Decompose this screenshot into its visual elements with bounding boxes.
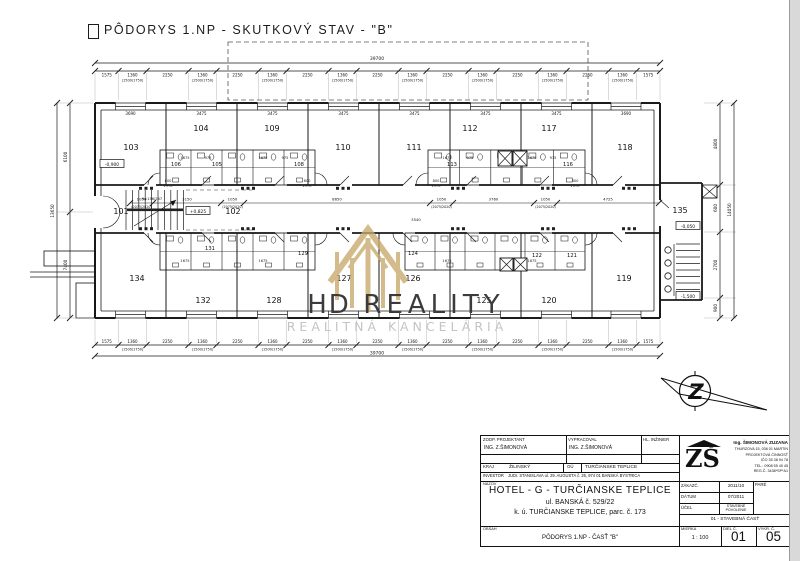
dim-label: (1500/1750)	[402, 348, 424, 352]
micro-dim: 1675	[180, 259, 189, 263]
micro-dim: 1675	[442, 259, 451, 263]
micro-dim: 800	[304, 179, 312, 183]
vent-square	[462, 187, 465, 190]
watermark-reality: REALITY	[363, 290, 504, 320]
fixture	[229, 153, 236, 158]
tb-kraj-label: KRAJ	[483, 465, 494, 470]
watermark-layer: HDREALITYREALITNÁ KANCELÁRIA	[287, 229, 508, 334]
room-width-label: 3475	[196, 111, 207, 116]
tb-nazov2: ul. BANSKÁ č. 529/22	[481, 499, 679, 506]
fixture	[173, 263, 179, 267]
dim-label: (2075/2020)	[431, 205, 451, 209]
room-width-label: 3475	[409, 111, 420, 116]
dim-label: 2250	[442, 339, 453, 344]
door-gap	[340, 183, 352, 186]
level-label: -0,050	[681, 224, 695, 230]
tb-obsah-value: PÔDORYS 1.NP - ČASŤ "B"	[481, 535, 679, 541]
door-gap	[613, 231, 625, 234]
micro-dim: 1675	[258, 156, 267, 160]
tb-zodp-label: ZODP. PROJEKTANT	[483, 438, 525, 443]
fixture	[537, 263, 543, 267]
dim-label: 2250	[302, 73, 313, 78]
dim-label: 1360	[267, 339, 278, 344]
dim-label: (1500/1750)	[542, 348, 564, 352]
tb-line	[753, 481, 754, 514]
vent-square	[342, 187, 345, 190]
dim-label: 1360	[337, 339, 348, 344]
dim-label: (1500/1750)	[332, 79, 354, 83]
core-room-label: 122	[532, 253, 542, 259]
dim-label: 1360	[477, 73, 488, 78]
vent-square	[336, 187, 339, 190]
door-arc	[416, 173, 428, 185]
dim-label: 1360	[337, 73, 348, 78]
dim-label: 8650	[332, 197, 342, 202]
fixture	[541, 154, 546, 160]
core-room-label: 131	[205, 246, 215, 252]
tb-line	[563, 463, 564, 472]
dim-label: 2250	[512, 339, 523, 344]
vent-square	[541, 227, 544, 230]
room-label: 101	[113, 207, 128, 216]
dim-label: (1500/1750)	[192, 348, 214, 352]
fixture	[198, 153, 205, 158]
micro-dim: 975	[205, 156, 212, 160]
dim-label: 2250	[372, 73, 383, 78]
dim-label: 1360	[617, 339, 628, 344]
fixture	[271, 237, 276, 243]
micro-dim: 1970	[302, 184, 312, 188]
title-block: ZODP. PROJEKTANT VYPRACOVAL HL. INŽINIER…	[480, 435, 792, 547]
micro-dim: 1675	[527, 259, 536, 263]
room-label: 104	[193, 124, 208, 133]
core-room-label: 124	[408, 251, 419, 257]
dim-label: (1500/1750)	[262, 348, 284, 352]
fixture	[297, 263, 303, 267]
fixture	[266, 178, 272, 182]
stamp-zs-monogram: ZŠ	[685, 446, 720, 471]
dim-label: (1500/1750)	[122, 348, 144, 352]
dim-label: 1360	[617, 73, 628, 78]
room-label: 134	[129, 274, 144, 283]
tb-ucel-value2: POVOLENIE	[719, 509, 753, 513]
tb-kraj-value: ŽILINSKÝ	[509, 465, 530, 470]
micro-dim: 800	[165, 179, 173, 183]
tb-line	[481, 526, 791, 527]
micro-dim: 1970	[570, 184, 580, 188]
north-letter: Z	[687, 380, 704, 404]
viewer-edge-strip	[789, 0, 800, 561]
dim-label: (1500/1750)	[612, 79, 634, 83]
dim-label: 1575	[643, 73, 654, 78]
dim-label: 1360	[197, 339, 208, 344]
room-label: 102	[225, 207, 240, 216]
room-label: 119	[616, 274, 631, 283]
vent-square	[633, 227, 636, 230]
micro-dim: 975	[550, 156, 557, 160]
dim-label: 1050	[228, 197, 238, 202]
room-width-label: 3690	[125, 111, 136, 116]
plan-line	[134, 200, 176, 226]
fixture	[302, 237, 307, 243]
tb-vykr-value: 05	[756, 530, 791, 544]
micro-dim: 975	[467, 156, 474, 160]
watermark-subtitle: REALITNÁ KANCELÁRIA	[287, 319, 508, 334]
dim-label: 3760	[489, 197, 499, 202]
fixture	[204, 263, 210, 267]
level-label: +0,825	[190, 209, 206, 215]
vent-square	[336, 227, 339, 230]
stamp-name: Ing. ŠIMONOVÁ ZUZANA	[725, 441, 788, 446]
tb-zakazc-value: 2011/10	[719, 484, 753, 489]
tb-line	[481, 454, 679, 455]
micro-dim: 1970	[163, 184, 173, 188]
stamp-line3: IČO 35 38 94 78	[725, 459, 788, 463]
fixture	[266, 263, 272, 267]
room-label: 111	[406, 143, 421, 152]
dim-label: 2250	[302, 339, 313, 344]
stamp-line2: PROJEKTOVÁ ČINNOSŤ	[725, 454, 788, 458]
tb-mierka-label: MIERKA	[681, 527, 696, 531]
vent-square	[150, 187, 153, 190]
vent-square	[342, 227, 345, 230]
dim-label: (1500/1750)	[542, 79, 564, 83]
vent-square	[139, 187, 142, 190]
door-gap	[144, 183, 156, 186]
micro-dim: 1970	[431, 184, 441, 188]
fixture	[302, 154, 307, 160]
fixture	[240, 237, 245, 243]
stair-note: 9×156/287	[142, 197, 162, 201]
tb-diel-value: 01	[721, 530, 756, 544]
door-arc	[315, 173, 327, 185]
dim-label: 1360	[547, 339, 558, 344]
watermark-hd: HD	[307, 290, 351, 320]
fixture	[567, 263, 573, 267]
tb-datum-value: 07/2011	[719, 495, 753, 500]
micro-dim: 1675	[442, 156, 451, 160]
fixture	[271, 154, 276, 160]
vent-square	[145, 187, 148, 190]
vent-square	[541, 187, 544, 190]
fixture	[229, 236, 236, 241]
vent-square	[241, 187, 244, 190]
fixture	[260, 236, 267, 241]
fixture	[478, 154, 483, 160]
dim-label: 1360	[407, 339, 418, 344]
fixture	[573, 237, 578, 243]
dim-label: (1500/1750)	[402, 79, 424, 83]
vent-square	[252, 187, 255, 190]
fixture	[417, 263, 423, 267]
vent-square	[547, 187, 550, 190]
tb-zodp-value: ING. Z.ŠIMONOVÁ	[484, 446, 527, 451]
dim-label: 4725	[603, 197, 613, 202]
room-width-label: 3475	[267, 111, 278, 116]
dim-label: 2250	[442, 73, 453, 78]
vent-square	[247, 187, 250, 190]
room-label: 135	[672, 206, 687, 215]
dim-label: 1360	[127, 73, 138, 78]
dim-label: 1360	[407, 73, 418, 78]
micro-dim: 1675	[180, 156, 189, 160]
micro-dim: 800	[433, 179, 441, 183]
fixture	[504, 178, 510, 182]
dim-label: 3150	[182, 197, 192, 202]
north-tail	[661, 378, 767, 410]
tb-ou-label: OÚ	[567, 465, 573, 470]
vent-square	[457, 187, 460, 190]
room-label: 126	[405, 274, 420, 283]
tb-line	[566, 436, 567, 463]
fixture	[411, 236, 418, 241]
tb-hl-label: HL. INŽINIER	[643, 438, 669, 443]
vent-square	[628, 187, 631, 190]
dim-label: 2250	[232, 73, 243, 78]
fixture	[483, 237, 488, 243]
room-width-label: 3690	[621, 111, 632, 116]
dim-label: (1500/1750)	[262, 79, 284, 83]
tb-investor-value: JUDr. STANISLAVA ul. 29. AUGUSTA č. 25, …	[508, 474, 640, 478]
vent-square	[547, 227, 550, 230]
room-width-label: 3475	[480, 111, 491, 116]
door-arc	[148, 233, 160, 245]
tb-ou-value: TURČIANSKE TEPLICE	[585, 465, 637, 470]
micro-dim: 1675	[258, 259, 267, 263]
dim-label: 14050	[727, 203, 732, 217]
tb-nazov1: HOTEL - G - TURČIANSKE TEPLICE	[481, 486, 679, 497]
dim-label: 1360	[547, 73, 558, 78]
tb-line	[679, 436, 680, 546]
fixture	[435, 153, 442, 158]
vent-square	[622, 187, 625, 190]
baluster	[665, 273, 671, 279]
vent-square	[451, 187, 454, 190]
room-label: 120	[541, 296, 556, 305]
dim-label: 2250	[372, 339, 383, 344]
vent-square	[462, 227, 465, 230]
vent-square	[633, 187, 636, 190]
door-gap	[340, 231, 352, 234]
level-label: -0,900	[105, 162, 119, 168]
stamp-line4: TEL.: 0908 55 40 45	[725, 465, 788, 469]
dim-label: (1500/1750)	[472, 348, 494, 352]
room-label: 110	[335, 143, 350, 152]
dim-label: (1500/1750)	[122, 79, 144, 83]
room-width-label: 3475	[338, 111, 349, 116]
baluster	[665, 247, 671, 253]
vent-square	[622, 227, 625, 230]
dim-label: 2250	[162, 73, 173, 78]
fixture	[173, 178, 179, 182]
room-label: 112	[462, 124, 477, 133]
micro-dim: 1675	[527, 156, 536, 160]
door-arc	[148, 173, 160, 185]
room-label: 132	[195, 296, 210, 305]
dim-label: 1050	[541, 197, 551, 202]
room-label: 103	[123, 143, 138, 152]
dim-label: 1360	[267, 73, 278, 78]
dim-label: 3540	[411, 217, 421, 222]
dim-label: 600	[713, 204, 718, 212]
fixture	[441, 178, 447, 182]
fixture	[178, 237, 183, 243]
fixture	[477, 263, 483, 267]
vent-square	[347, 187, 350, 190]
tb-line	[641, 436, 642, 463]
dim-label: 2250	[512, 73, 523, 78]
baluster	[665, 286, 671, 292]
fixture	[572, 154, 577, 160]
tb-line	[679, 514, 791, 515]
fixture	[513, 237, 518, 243]
exterior-landing	[44, 251, 95, 266]
dim-label: 1360	[477, 339, 488, 344]
fixture	[209, 237, 214, 243]
tb-line	[679, 492, 753, 493]
door-arc	[585, 173, 597, 185]
fixture	[167, 153, 174, 158]
vent-square	[457, 227, 460, 230]
tb-line	[581, 463, 582, 472]
vent-square	[628, 227, 631, 230]
fixture	[423, 237, 428, 243]
room-label: 117	[541, 124, 556, 133]
fixture	[501, 236, 508, 241]
core-room-label: 113	[447, 162, 457, 168]
tb-vypracoval-label: VYPRACOVAL	[568, 438, 597, 443]
door-arc	[585, 233, 597, 245]
door-arc	[393, 233, 405, 245]
vent-square	[451, 227, 454, 230]
dim-label: 6100	[63, 151, 68, 162]
core-room-label: 105	[212, 162, 222, 168]
dim-label: 1050	[437, 197, 447, 202]
room-label: 109	[264, 124, 279, 133]
fixture	[167, 236, 174, 241]
room-label: 118	[617, 143, 632, 152]
drawing-page: 3970015751360(1500/1750)22501360(1500/17…	[0, 0, 800, 561]
core-room-label: 129	[298, 251, 308, 257]
core-room-label: 121	[567, 253, 577, 259]
dim-label: 1360	[197, 73, 208, 78]
tb-nazov3: k. ú. TURČIANSKE TEPLICE, parc. č. 173	[481, 509, 679, 516]
dim-label: (2075/2020)	[535, 205, 555, 209]
dim-label: 4800	[713, 138, 718, 149]
vent-square	[552, 227, 555, 230]
stamp-line1: THURZOVA 15, 036 01 MARTIN	[725, 448, 788, 452]
dim-label: (2075/2020)	[131, 205, 151, 209]
level-label: -1,500	[681, 294, 695, 300]
door-arc	[315, 233, 327, 245]
tb-mierka-value: 1 : 100	[679, 536, 721, 542]
vent-square	[252, 227, 255, 230]
tb-datum-label: DÁTUM	[681, 495, 696, 499]
door-gap	[403, 183, 415, 186]
fixture	[561, 236, 568, 241]
dim-label: (1500/1750)	[472, 79, 494, 83]
tb-pare-label: PARÉ	[755, 483, 766, 488]
room-label: 128	[266, 296, 281, 305]
tb-zakazc-label: ZÁKAZČ.	[681, 484, 699, 488]
core-room-label: 108	[294, 162, 304, 168]
fixture	[198, 236, 205, 241]
vent-square	[552, 187, 555, 190]
dim-label: 2250	[162, 339, 173, 344]
fixture	[291, 236, 298, 241]
dim-label: 1575	[102, 73, 113, 78]
fixture	[297, 178, 303, 182]
tb-cast: 01 - STAVEBNÁ ČASŤ	[679, 517, 791, 522]
dim-label: 2250	[582, 73, 593, 78]
dim-label: 2250	[582, 339, 593, 344]
entrance-gap	[93, 196, 102, 228]
tb-line	[481, 481, 791, 482]
dim-label: 2250	[232, 339, 243, 344]
tb-obsah-label: OBSAH	[483, 527, 497, 531]
door-gap	[613, 183, 625, 186]
dim-label: 13650	[50, 204, 55, 218]
title-marker-square	[88, 24, 99, 39]
dim-label: 1360	[127, 339, 138, 344]
fixture	[531, 236, 538, 241]
dim-label: (1500/1750)	[192, 79, 214, 83]
dim-label: 39700	[370, 56, 384, 62]
core-room-label: 116	[563, 162, 573, 168]
door-gap	[144, 231, 156, 234]
fixture	[441, 236, 448, 241]
dim-label: (1500/1750)	[612, 348, 634, 352]
tb-vypracoval-value: ING. Z.ŠIMONOVÁ	[569, 446, 612, 451]
fixture	[453, 237, 458, 243]
dim-label: 2700	[713, 259, 718, 270]
dim-label: 1575	[102, 339, 113, 344]
stamp-line5: REG.Č. 3438*SP*A1	[725, 470, 788, 474]
dim-label: 7400	[63, 259, 68, 270]
core-room-label: 106	[171, 162, 181, 168]
fixture	[240, 154, 245, 160]
north-arrow: Z	[661, 371, 767, 411]
micro-dim: 800	[572, 179, 580, 183]
room-width-label: 3475	[551, 111, 562, 116]
fixture	[291, 153, 298, 158]
dim-label: 1575	[643, 339, 654, 344]
drawing-title: PÔDORYS 1.NP - SKUTKOVÝ STAV - "B"	[104, 23, 394, 37]
tb-investor-label: INVESTOR	[483, 474, 504, 478]
fixture	[560, 153, 567, 158]
dim-label: 39700	[370, 351, 384, 357]
tb-ucel-label: ÚČEL	[681, 506, 692, 510]
vent-square	[347, 227, 350, 230]
exterior-stair	[76, 283, 95, 318]
micro-dim: 975	[282, 156, 289, 160]
fixture	[535, 178, 541, 182]
dim-label: 900	[713, 304, 718, 312]
vent-square	[139, 227, 142, 230]
baluster	[665, 260, 671, 266]
dim-label: (1500/1750)	[332, 348, 354, 352]
